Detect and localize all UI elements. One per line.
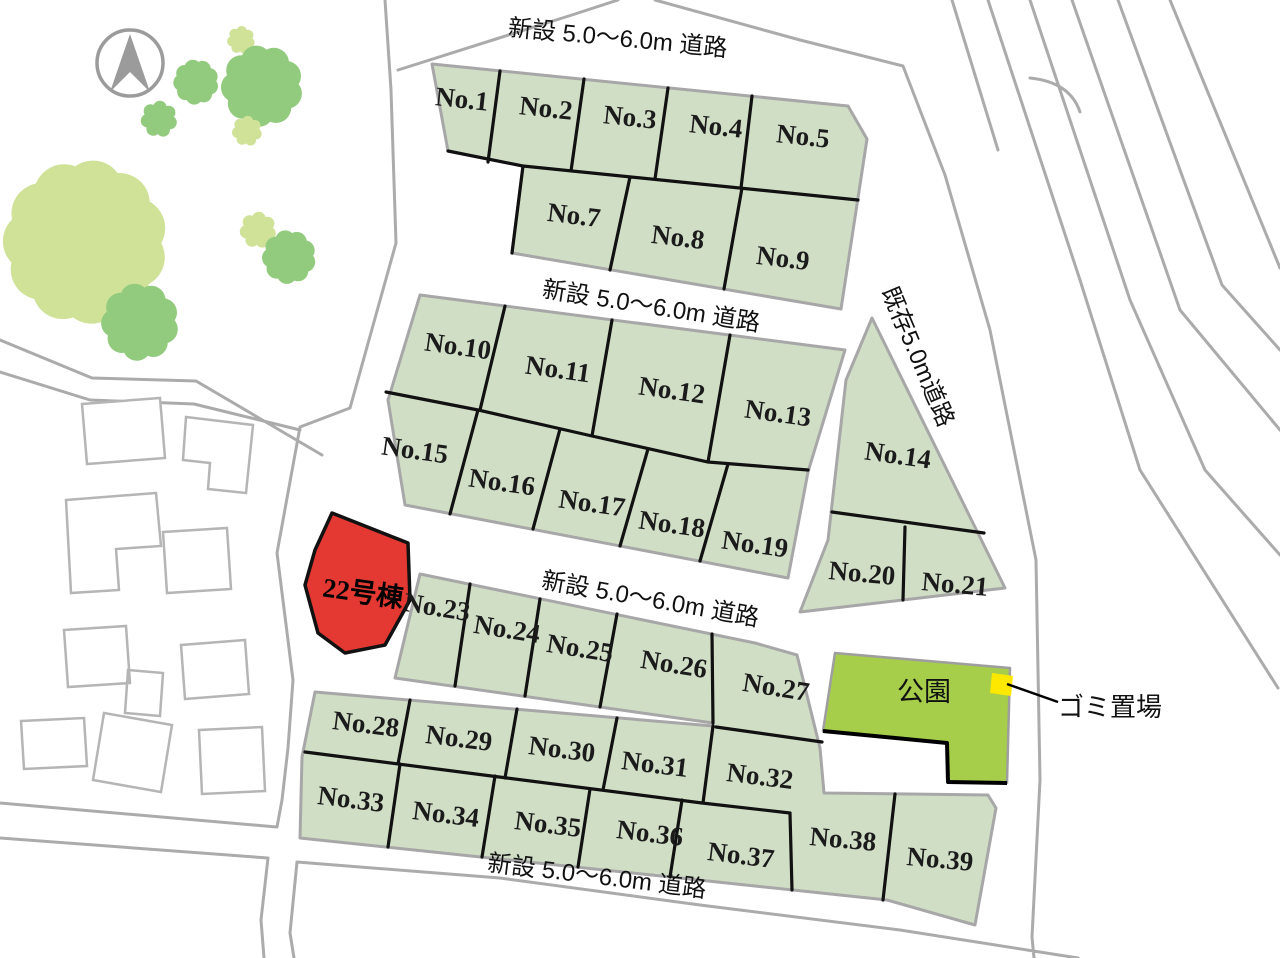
lot-label-no3: No.3 [602, 99, 658, 134]
lot-label-no20: No.20 [827, 555, 896, 591]
park-label: 公園 [897, 677, 951, 707]
lot-label-no38: No.38 [808, 821, 877, 857]
lot-label-no21: No.21 [920, 566, 989, 602]
north-arrow-icon [97, 30, 163, 96]
lot-label-no1: No.1 [434, 81, 490, 116]
map-canvas: 新設 5.0〜6.0m 道路 新設 5.0〜6.0m 道路 新設 5.0〜6.0… [0, 0, 1280, 958]
lot-label-no39: No.39 [905, 841, 974, 877]
lot-label-no2: No.2 [518, 90, 574, 125]
lot-label-no5: No.5 [775, 118, 831, 153]
garbage-label: ゴミ置場 [1058, 692, 1162, 722]
subdivision-map: 新設 5.0〜6.0m 道路 新設 5.0〜6.0m 道路 新設 5.0〜6.0… [0, 0, 1280, 958]
lot-label-no4: No.4 [688, 108, 744, 143]
